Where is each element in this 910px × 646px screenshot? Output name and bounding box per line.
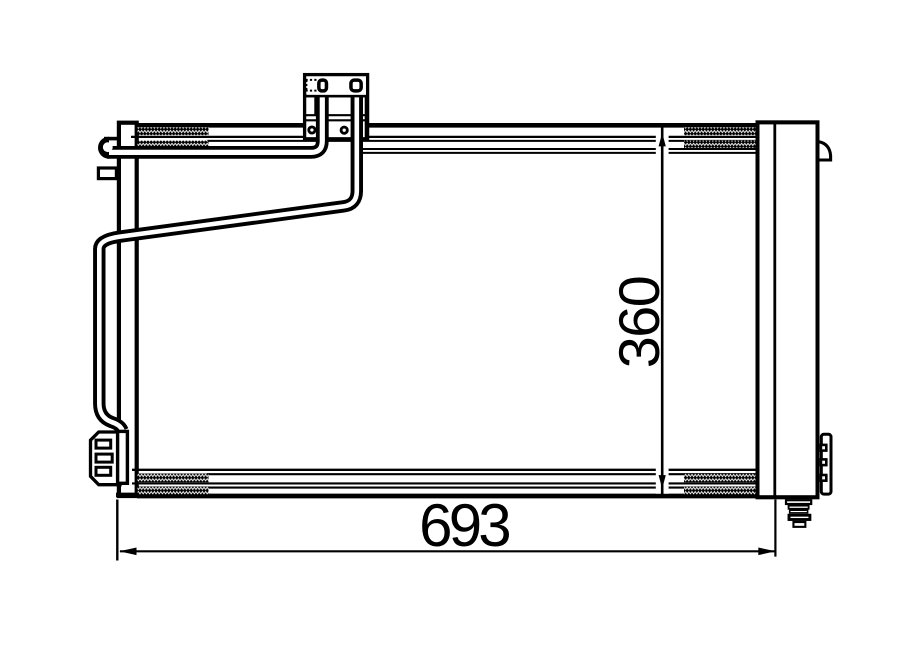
svg-text:360: 360 bbox=[608, 277, 672, 368]
svg-text:693: 693 bbox=[419, 492, 509, 559]
